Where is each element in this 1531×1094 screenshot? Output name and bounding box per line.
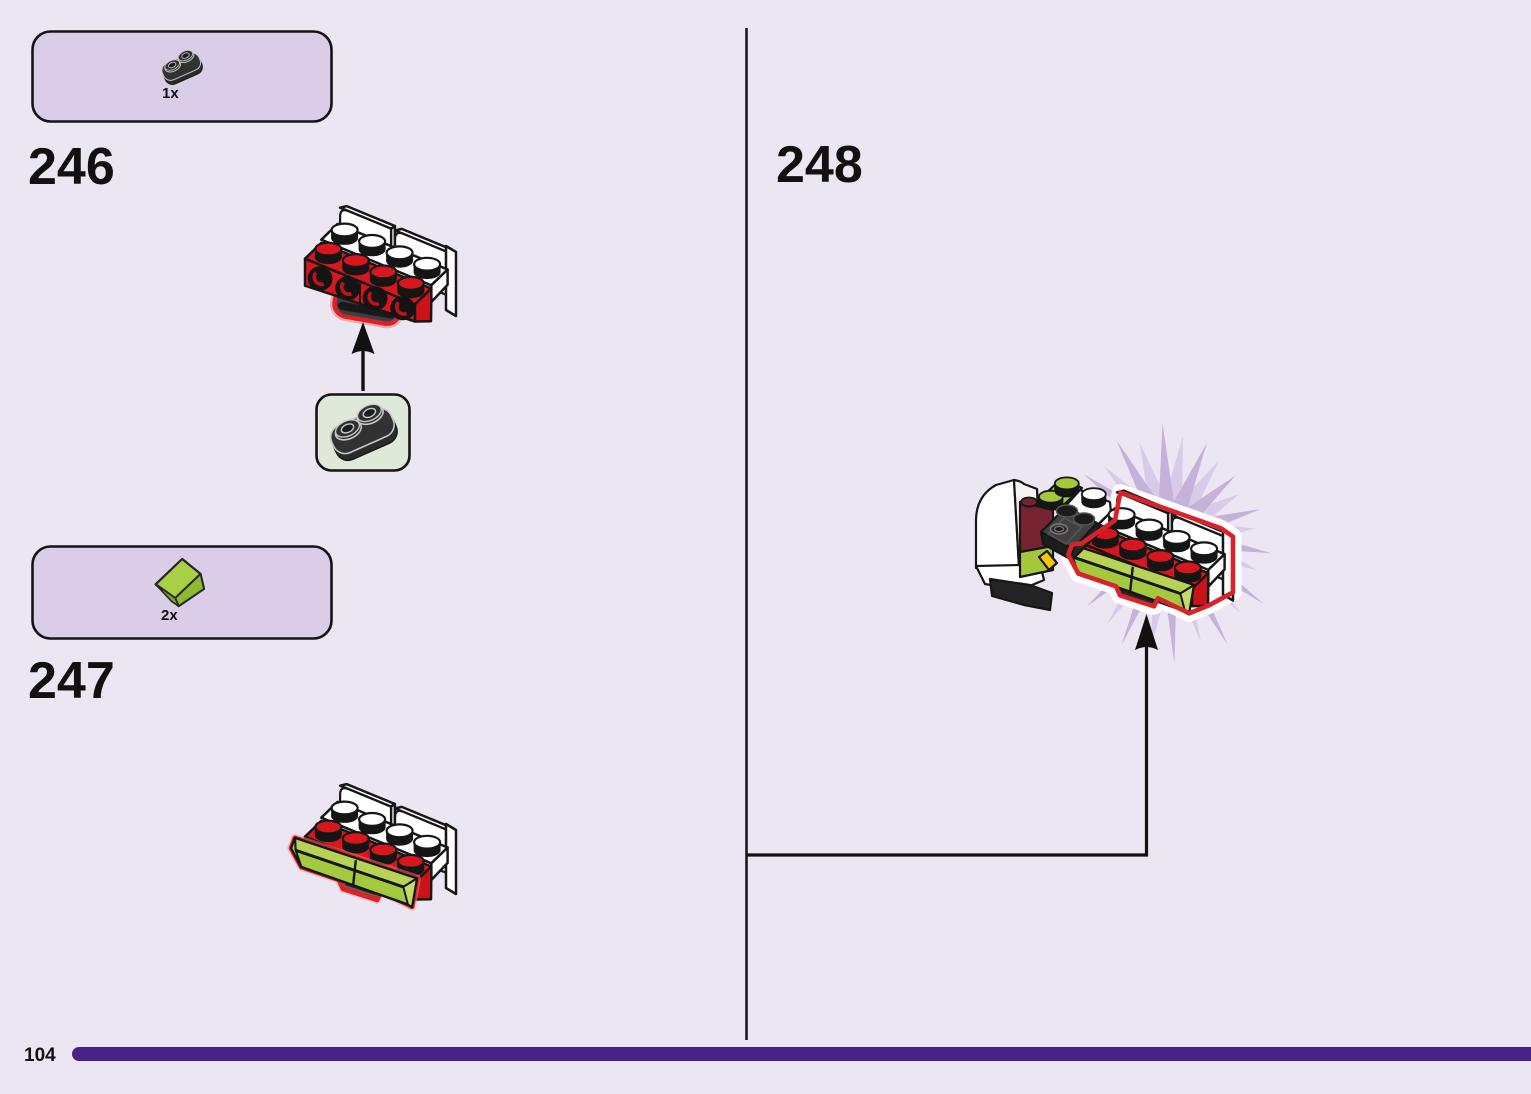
svg-text:104: 104 <box>24 1045 56 1066</box>
svg-text:2x: 2x <box>161 607 178 624</box>
svg-text:248: 248 <box>776 136 863 194</box>
svg-text:247: 247 <box>28 652 115 710</box>
svg-text:1x: 1x <box>162 85 179 102</box>
svg-text:246: 246 <box>28 138 115 196</box>
